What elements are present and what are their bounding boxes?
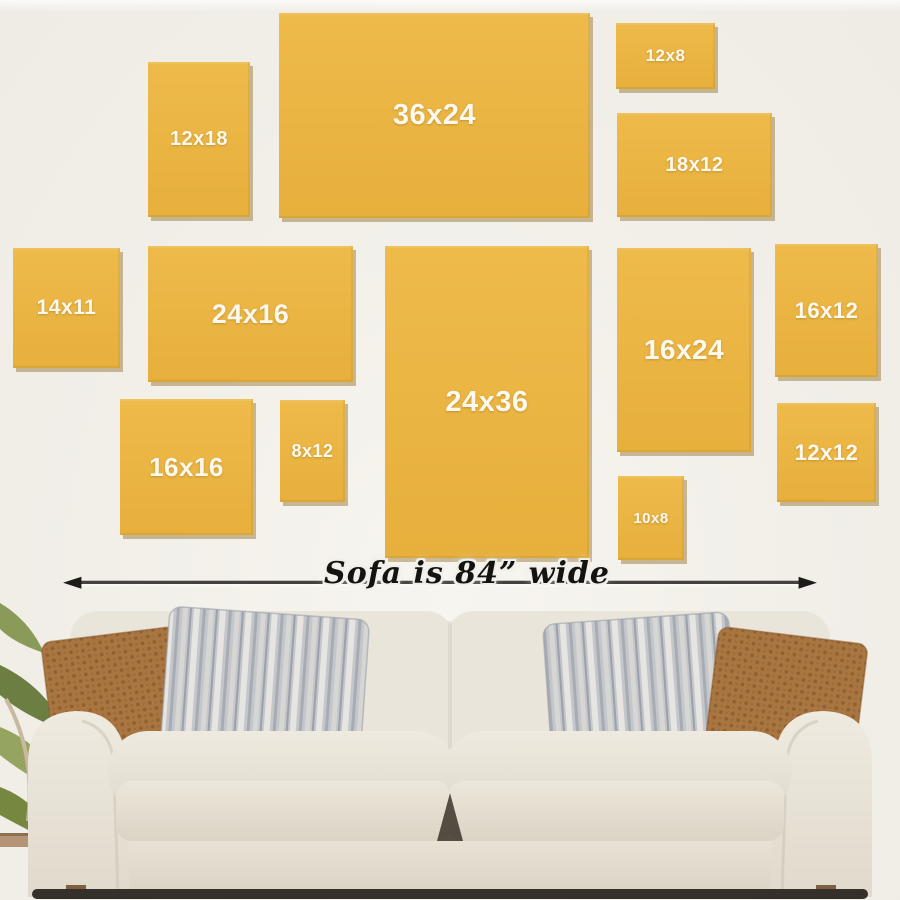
arrowhead-left-icon: ◄ (63, 569, 81, 593)
frame-size-label: 18x12 (665, 154, 723, 177)
frame-12x8: 12x8 (616, 23, 715, 89)
frame-size-label: 16x16 (149, 452, 224, 483)
frame-12x18: 12x18 (148, 62, 250, 217)
sofa-seat-cushion-left (108, 731, 456, 841)
wall-background: 12x18 36x24 12x8 18x12 14x11 24x16 24x36… (0, 0, 900, 900)
frame-10x8: 10x8 (618, 476, 684, 560)
frame-size-label: 12x12 (795, 440, 859, 466)
arrowhead-right-icon: ► (799, 569, 817, 593)
frame-size-label: 16x24 (644, 334, 724, 366)
frame-36x24: 36x24 (279, 13, 590, 218)
sofa-illustration (0, 595, 900, 900)
frame-size-label: 12x8 (646, 46, 686, 66)
sofa-arm-right (770, 711, 872, 897)
frame-12x12: 12x12 (777, 403, 876, 502)
frame-size-label: 8x12 (291, 441, 333, 462)
frame-8x12: 8x12 (280, 400, 345, 502)
frame-24x16: 24x16 (148, 246, 353, 382)
frame-size-label: 36x24 (393, 99, 476, 132)
frame-14x11: 14x11 (13, 248, 120, 368)
frame-size-label: 24x16 (212, 299, 290, 330)
frame-size-label: 24x36 (445, 386, 528, 419)
frame-16x24: 16x24 (617, 248, 751, 452)
frame-size-label: 14x11 (37, 296, 97, 320)
frame-size-label: 16x12 (795, 298, 859, 324)
sofa-seat-cushion-right (444, 731, 792, 841)
frame-size-label: 10x8 (633, 510, 668, 527)
frame-16x16: 16x16 (120, 399, 253, 535)
frame-16x12: 16x12 (775, 244, 878, 377)
frame-24x36: 24x36 (385, 246, 589, 558)
frame-size-label: 12x18 (170, 128, 228, 151)
sofa-floor-shadow (32, 889, 868, 899)
frame-18x12: 18x12 (617, 113, 772, 217)
sofa-width-label: Sofa is 84” wide (322, 556, 612, 591)
sofa-arm-left (28, 711, 130, 897)
